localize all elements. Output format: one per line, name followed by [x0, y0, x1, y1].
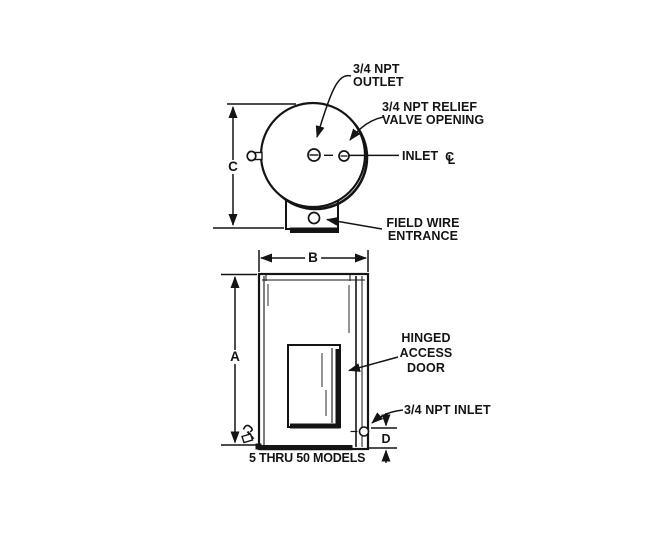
- front-view-drawing: [221, 250, 403, 463]
- junction-box-shadow: [290, 228, 339, 234]
- water-heater-dimension-diagram: 3/4 NPT OUTLET 3/4 NPT RELIEF VALVE OPEN…: [0, 0, 650, 535]
- outlet-label: 3/4 NPT OUTLET: [353, 63, 404, 88]
- dim-letter-d: D: [379, 432, 392, 446]
- relief-valve-label: 3/4 NPT RELIEF VALVE OPENING: [382, 101, 484, 126]
- access-door-hinge-band: [336, 349, 342, 426]
- dim-letter-a: A: [227, 350, 243, 364]
- dim-letter-c: C: [225, 160, 241, 174]
- relief-valve-port: [339, 151, 349, 161]
- models-note: 5 THRU 50 MODELS: [249, 452, 365, 465]
- access-door-bottom-shadow: [290, 424, 341, 429]
- field-wire-port: [309, 213, 320, 224]
- dim-letter-b: B: [305, 251, 321, 265]
- field-wire-label: FIELD WIRE ENTRANCE: [382, 217, 464, 242]
- top-view-drawing: [213, 76, 399, 233]
- drain-valve-icon: [242, 425, 254, 442]
- npt-inlet-leader-arrow: [372, 410, 403, 423]
- tank-bottom-shadow: [260, 445, 353, 450]
- inlet-label-row: INLETCL: [402, 149, 455, 163]
- hinged-door-label: HINGED ACCESS DOOR: [398, 331, 454, 376]
- outlet-port: [308, 149, 320, 161]
- side-knob: [247, 151, 262, 160]
- npt-inlet-label: 3/4 NPT INLET: [404, 404, 491, 417]
- inlet-label: INLET: [402, 149, 438, 163]
- centerline-symbol: CL: [445, 150, 455, 164]
